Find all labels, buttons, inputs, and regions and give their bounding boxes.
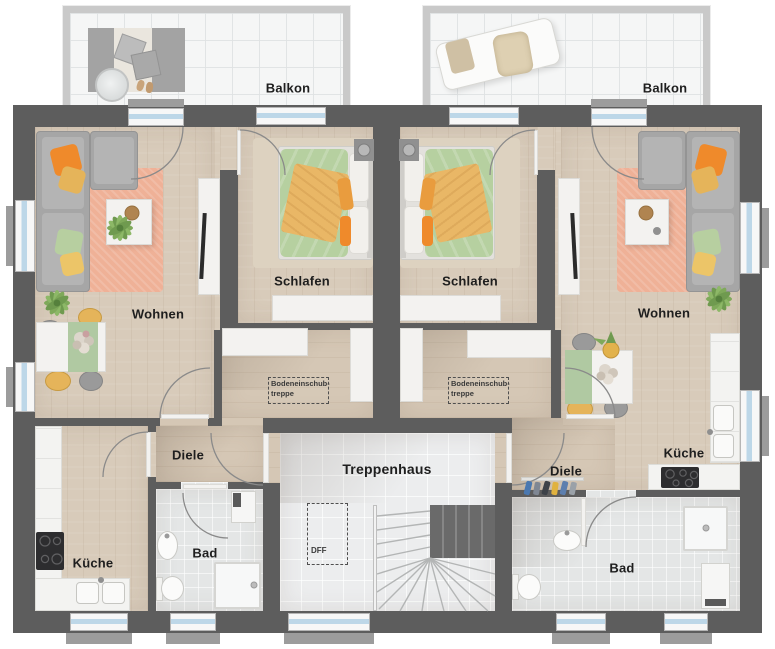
window-stub	[660, 633, 712, 644]
label-wohnen-left: Wohnen	[132, 307, 184, 322]
doorway	[586, 490, 636, 497]
shower	[214, 562, 261, 609]
door-leaf	[161, 414, 209, 419]
door-leaf	[566, 414, 614, 419]
window-kueche-left	[70, 613, 128, 631]
wardrobe	[350, 328, 373, 402]
chair-gray	[79, 371, 103, 391]
doorway	[222, 418, 263, 426]
label-diele-left: Diele	[172, 448, 204, 463]
door-leaf	[237, 130, 241, 175]
label-bodeneinschubtreppe-left: Bodeneinschub- treppe	[271, 379, 330, 399]
pillow-yellow	[59, 251, 85, 277]
stair-landing-dark	[430, 505, 495, 558]
window-bad-right-1	[556, 613, 606, 631]
kitchen-sink	[102, 582, 125, 604]
doorway	[537, 127, 555, 170]
window-treppenhaus	[288, 613, 370, 631]
window-wohnen-right	[740, 202, 760, 274]
door-leaf	[263, 433, 269, 483]
window-stub	[552, 633, 610, 644]
sofa-cushion	[94, 137, 134, 184]
lounger-blanket	[492, 30, 535, 78]
balcony-round-table	[95, 68, 129, 102]
label-dff: DFF	[311, 546, 327, 556]
balcony-door-right	[591, 108, 647, 126]
label-schlafen-left: Schlafen	[274, 274, 330, 289]
bath-sink	[553, 530, 581, 551]
floor-plan: Bodeneinschub- treppe Bodeneinschub-	[0, 0, 775, 649]
table-runner	[565, 350, 592, 404]
label-schlafen-right: Schlafen	[442, 274, 498, 289]
balcony-door-left	[128, 108, 184, 126]
pillow-yellow	[691, 251, 717, 277]
door-leaf	[183, 484, 227, 489]
wall-speaker	[399, 139, 419, 161]
cushion-orange	[422, 216, 433, 246]
door-sill	[128, 99, 184, 107]
wall-speaker	[354, 139, 374, 161]
door-leaf	[534, 130, 538, 175]
table-runner	[68, 322, 98, 372]
window-schlafen-right	[449, 107, 519, 125]
dresser	[400, 295, 501, 321]
cooktop	[36, 532, 64, 570]
window-wohnen-left	[15, 200, 35, 272]
label-treppenhaus: Treppenhaus	[342, 461, 431, 477]
label-bodeneinschubtreppe-right: Bodeneinschub- treppe	[451, 379, 510, 399]
wardrobe	[467, 330, 551, 358]
toilet	[161, 576, 184, 601]
label-bad-right: Bad	[609, 561, 634, 576]
door-leaf	[506, 433, 512, 483]
sofa-cushion	[642, 137, 682, 184]
doorway	[220, 127, 238, 170]
window-kueche-right	[740, 390, 760, 462]
kitchen-sink	[713, 405, 734, 431]
stair-rail	[373, 505, 377, 611]
dresser	[272, 295, 373, 321]
bath-sink	[157, 531, 178, 560]
window-schlafen-left	[256, 107, 326, 125]
window-bad-right-2	[664, 613, 708, 631]
cooktop	[661, 467, 699, 488]
window-stub	[284, 633, 374, 644]
door-leaf	[581, 498, 586, 546]
wardrobe	[400, 328, 423, 402]
bed-pillow	[349, 206, 369, 254]
door-leaf	[146, 432, 151, 477]
wardrobe	[222, 328, 308, 356]
label-bad-left: Bad	[192, 546, 217, 561]
window-stub	[166, 633, 220, 644]
bed-pillow	[404, 206, 424, 254]
coffee-table	[625, 199, 669, 245]
coffee-table	[106, 199, 152, 245]
doorway	[160, 418, 208, 426]
balcony-pillow	[131, 50, 162, 81]
window-bad-left	[170, 613, 216, 631]
window-stub	[66, 633, 132, 644]
cushion-orange	[340, 216, 351, 246]
window-dining-left	[15, 362, 35, 412]
label-kueche-right: Küche	[664, 446, 705, 461]
label-balkon-right: Balkon	[643, 81, 688, 96]
label-wohnen-right: Wohnen	[638, 306, 690, 321]
label-balkon-left: Balkon	[266, 81, 311, 96]
doorway	[563, 418, 615, 426]
washing-machine-detail	[705, 599, 726, 606]
label-kueche-left: Küche	[73, 556, 114, 571]
washing-machine-detail	[233, 493, 241, 507]
shower	[683, 506, 728, 551]
kitchen-sink	[713, 434, 734, 458]
door-sill	[591, 99, 647, 107]
toilet	[517, 574, 541, 600]
kitchen-sink	[76, 582, 99, 604]
label-diele-right: Diele	[550, 464, 582, 479]
chair-yellow	[45, 371, 71, 391]
